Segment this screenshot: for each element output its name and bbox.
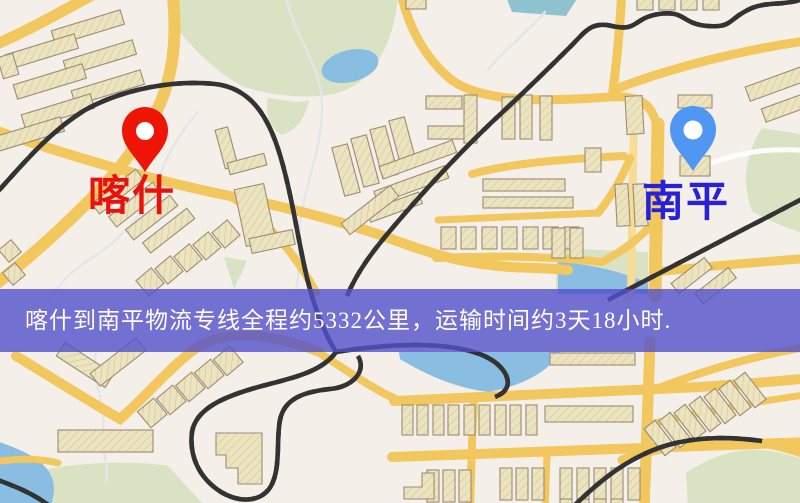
destination-pin[interactable] [663, 97, 723, 177]
route-info-banner: 喀什到南平物流专线全程约5332公里，运输时间约3天18小时. [0, 289, 800, 352]
buildings [0, 0, 800, 503]
banner-text: 喀什到南平物流专线全程约5332公里，运输时间约3天18小时. [0, 289, 800, 352]
water-areas [0, 0, 648, 503]
route-map-screenshot: 喀什 南平 喀什到南平物流专线全程约5332公里，运输时间约3天18小时. [0, 0, 800, 503]
map-background [0, 0, 800, 503]
destination-pin-icon [663, 97, 723, 177]
origin-label: 喀什 [88, 176, 176, 218]
origin-pin-icon [115, 98, 175, 178]
origin-pin[interactable] [115, 98, 175, 178]
destination-label: 南平 [642, 182, 730, 224]
